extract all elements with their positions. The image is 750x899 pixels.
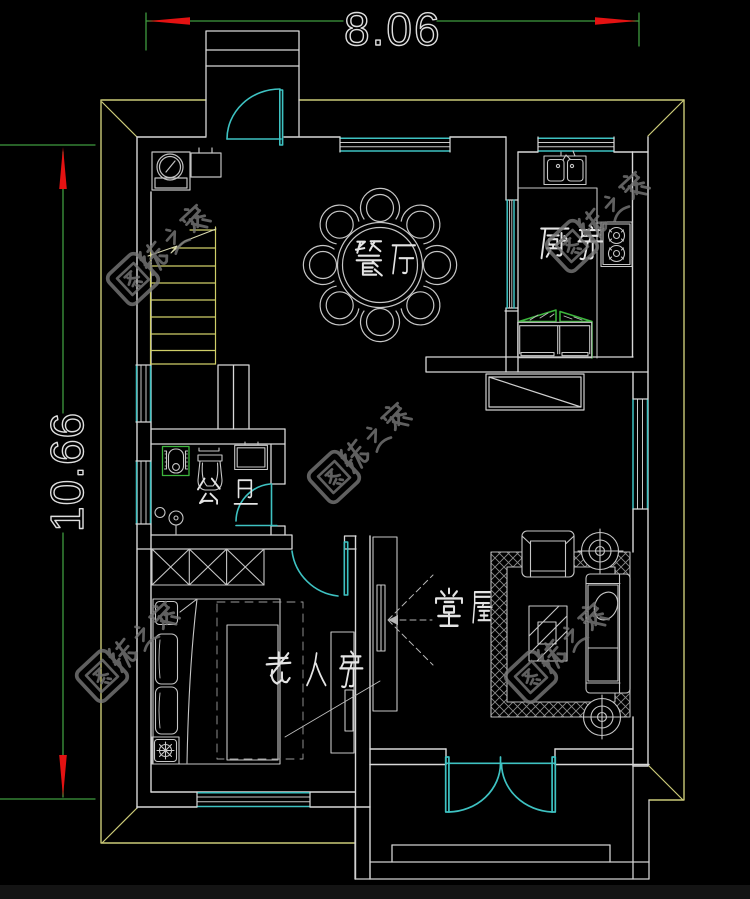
svg-text:10.66: 10.66	[41, 412, 93, 532]
svg-text:8.06: 8.06	[344, 3, 442, 55]
